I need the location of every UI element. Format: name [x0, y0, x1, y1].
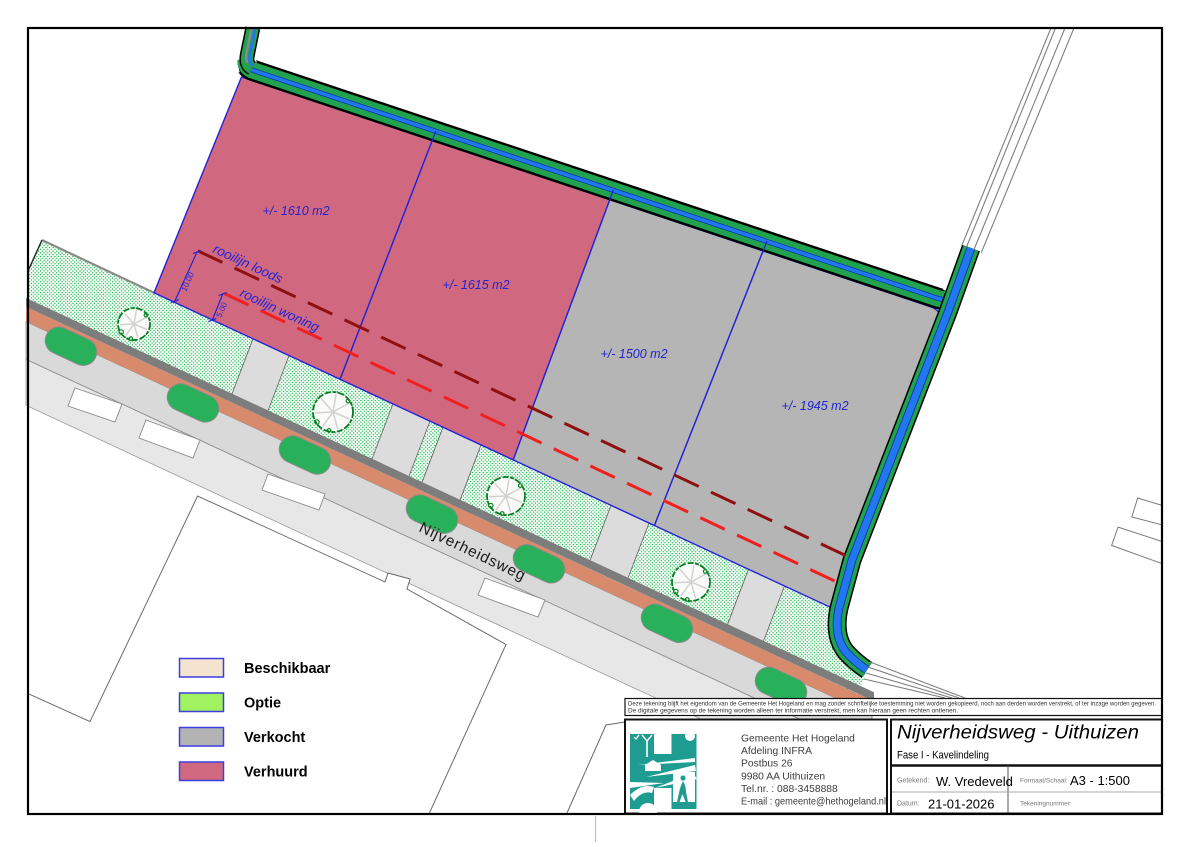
svg-text:Beschikbaar: Beschikbaar — [244, 661, 331, 677]
svg-text:Postbus 26: Postbus 26 — [741, 759, 793, 770]
svg-text:+/- 1945 m2: +/- 1945 m2 — [781, 399, 848, 413]
svg-text:Verkocht: Verkocht — [244, 730, 305, 746]
svg-text:21-01-2026: 21-01-2026 — [928, 797, 995, 812]
svg-text:+/- 1610 m2: +/- 1610 m2 — [262, 204, 329, 218]
svg-text:Afdeling INFRA: Afdeling INFRA — [741, 746, 812, 757]
svg-text:Formaat/Schaal:: Formaat/Schaal: — [1020, 778, 1068, 785]
svg-text:E-mail : gemeente@hethogeland.: E-mail : gemeente@hethogeland.nl — [741, 797, 886, 808]
svg-text:+/- 1500 m2: +/- 1500 m2 — [600, 347, 667, 361]
svg-text:Gemeente Het Hogeland: Gemeente Het Hogeland — [741, 734, 855, 745]
svg-text:Deze tekening blijft het eigen: Deze tekening blijft het eigendom van de… — [628, 701, 1156, 708]
svg-text:Tel.nr. : 088-3458888: Tel.nr. : 088-3458888 — [741, 784, 838, 795]
svg-text:De digitale gegevens op de tek: De digitale gegevens op de tekening word… — [628, 708, 958, 715]
svg-text:Datum:: Datum: — [897, 801, 920, 808]
svg-text:9980 AA Uithuizen: 9980 AA Uithuizen — [741, 771, 825, 782]
svg-text:Verhuurd: Verhuurd — [244, 765, 308, 781]
svg-text:Optie: Optie — [244, 696, 281, 712]
svg-text:A3 - 1:500: A3 - 1:500 — [1070, 773, 1130, 788]
svg-text:Nijverheidsweg - Uithuizen: Nijverheidsweg - Uithuizen — [897, 722, 1139, 744]
svg-text:+/- 1615 m2: +/- 1615 m2 — [442, 278, 509, 292]
svg-text:Getekend:: Getekend: — [897, 778, 929, 785]
svg-text:W. Vredeveld: W. Vredeveld — [936, 774, 1013, 789]
svg-text:Tekeningnummer:: Tekeningnummer: — [1020, 801, 1072, 808]
svg-text:Fase I - Kavelindeling: Fase I - Kavelindeling — [897, 750, 989, 762]
